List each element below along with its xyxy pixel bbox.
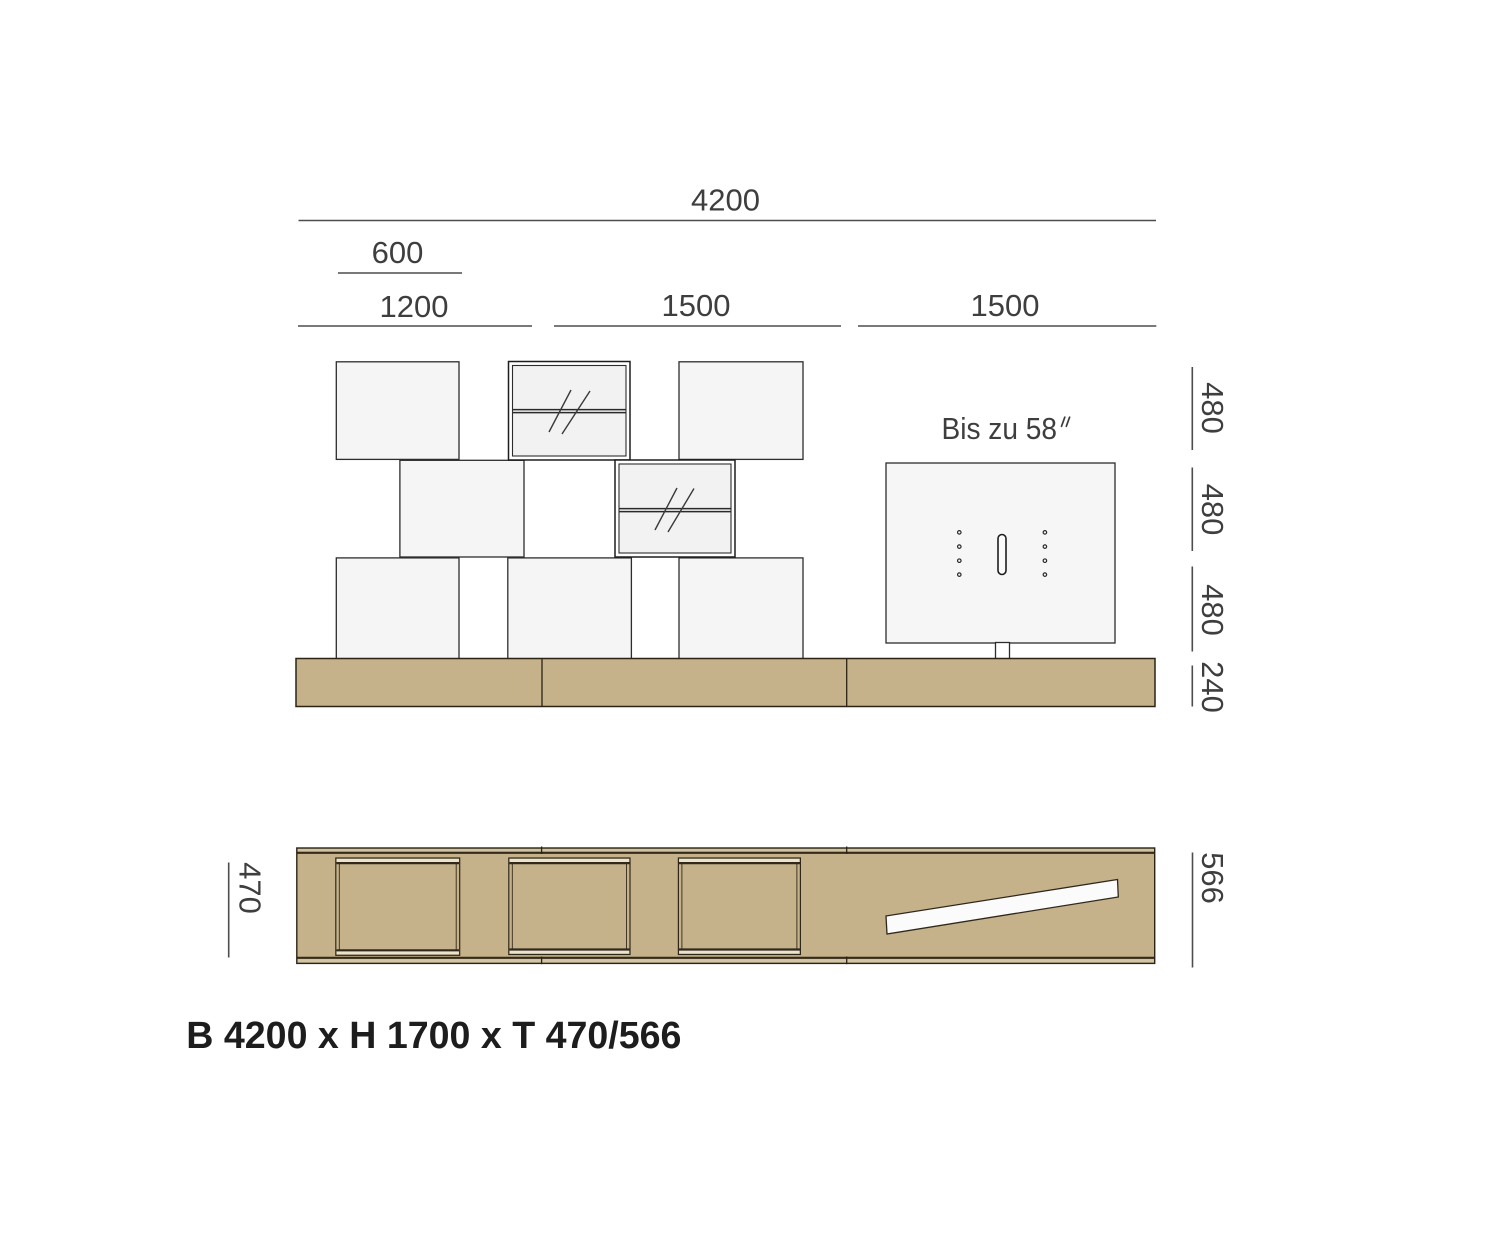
svg-text:480: 480: [1195, 584, 1230, 636]
svg-text:B 4200 x H 1700 x T 470/566: B 4200 x H 1700 x T 470/566: [186, 1014, 681, 1056]
svg-text:1500: 1500: [662, 288, 731, 323]
svg-text:1200: 1200: [380, 289, 449, 324]
svg-text:470: 470: [233, 862, 268, 914]
svg-text:Bis zu 58: Bis zu 58: [942, 411, 1058, 446]
svg-text:600: 600: [372, 235, 424, 270]
svg-text:480: 480: [1195, 484, 1230, 536]
svg-text:4200: 4200: [691, 183, 760, 218]
svg-text:480: 480: [1195, 382, 1230, 434]
svg-text:1500: 1500: [971, 288, 1040, 323]
svg-text:566: 566: [1195, 852, 1230, 904]
svg-text:240: 240: [1195, 661, 1230, 713]
